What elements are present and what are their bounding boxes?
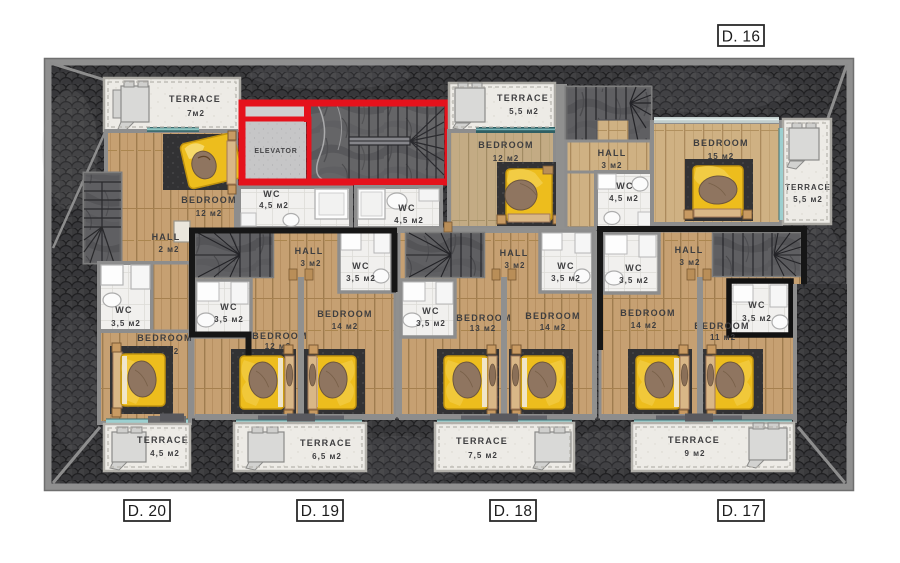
svg-text:13 м2: 13 м2 <box>470 324 497 333</box>
svg-text:4,5 м2: 4,5 м2 <box>394 216 424 225</box>
svg-text:7,5 м2: 7,5 м2 <box>468 451 498 460</box>
svg-text:WC: WC <box>352 261 369 271</box>
svg-text:5,5 м2: 5,5 м2 <box>793 195 823 204</box>
svg-text:WC: WC <box>220 302 237 312</box>
svg-text:4,5 м2: 4,5 м2 <box>150 449 180 458</box>
svg-text:WC: WC <box>616 181 633 191</box>
svg-text:3 м2: 3 м2 <box>601 161 622 170</box>
svg-text:ELEVATOR: ELEVATOR <box>254 148 297 155</box>
svg-text:3 м2: 3 м2 <box>679 258 700 267</box>
svg-text:4,5 м2: 4,5 м2 <box>259 201 289 210</box>
svg-text:3 м2: 3 м2 <box>300 259 321 268</box>
svg-text:BEDROOM: BEDROOM <box>317 309 372 319</box>
svg-text:TERRACE: TERRACE <box>668 435 720 445</box>
svg-text:HALL: HALL <box>295 246 324 256</box>
svg-text:3,5 м2: 3,5 м2 <box>111 319 141 328</box>
svg-text:HALL: HALL <box>500 248 529 258</box>
svg-text:TERRACE: TERRACE <box>169 94 221 104</box>
svg-text:3,5 м2: 3,5 м2 <box>346 274 376 283</box>
svg-text:3,5 м2: 3,5 м2 <box>551 274 581 283</box>
svg-text:HALL: HALL <box>152 232 181 242</box>
svg-text:D. 19: D. 19 <box>301 503 340 520</box>
svg-text:TERRACE: TERRACE <box>137 435 189 445</box>
svg-text:TERRACE: TERRACE <box>497 93 549 103</box>
svg-text:7м2: 7м2 <box>187 109 205 118</box>
svg-text:14 м2: 14 м2 <box>631 321 658 330</box>
svg-text:BEDROOM: BEDROOM <box>181 195 236 205</box>
svg-text:12 м2: 12 м2 <box>493 154 520 163</box>
svg-text:3,5 м2: 3,5 м2 <box>619 276 649 285</box>
svg-text:9 м2: 9 м2 <box>684 449 705 458</box>
svg-text:D. 17: D. 17 <box>722 503 761 520</box>
svg-text:D. 18: D. 18 <box>494 503 533 520</box>
svg-text:TERRACE: TERRACE <box>456 436 508 446</box>
svg-text:6,5 м2: 6,5 м2 <box>312 452 342 461</box>
svg-text:12 м2: 12 м2 <box>196 209 223 218</box>
svg-text:BEDROOM: BEDROOM <box>478 140 533 150</box>
svg-text:WC: WC <box>263 189 280 199</box>
svg-text:WC: WC <box>115 305 132 315</box>
svg-text:TERRACE: TERRACE <box>785 183 831 192</box>
svg-text:WC: WC <box>625 263 642 273</box>
svg-text:D. 20: D. 20 <box>128 503 167 520</box>
svg-text:2 м2: 2 м2 <box>158 245 179 254</box>
svg-text:WC: WC <box>398 203 415 213</box>
svg-text:3,5 м2: 3,5 м2 <box>214 315 244 324</box>
svg-text:TERRACE: TERRACE <box>300 438 352 448</box>
svg-text:HALL: HALL <box>675 245 704 255</box>
svg-text:14 м2: 14 м2 <box>332 322 359 331</box>
svg-text:4,5 м2: 4,5 м2 <box>609 194 639 203</box>
svg-text:BEDROOM: BEDROOM <box>137 333 192 343</box>
svg-text:WC: WC <box>422 306 439 316</box>
svg-text:BEDROOM: BEDROOM <box>620 308 675 318</box>
svg-text:3,5 м2: 3,5 м2 <box>416 319 446 328</box>
svg-text:D. 16: D. 16 <box>722 29 761 46</box>
svg-text:5,5 м2: 5,5 м2 <box>509 107 539 116</box>
svg-text:WC: WC <box>557 261 574 271</box>
svg-text:HALL: HALL <box>598 148 627 158</box>
svg-text:BEDROOM: BEDROOM <box>525 311 580 321</box>
svg-text:11 м2: 11 м2 <box>710 333 736 342</box>
svg-text:WC: WC <box>748 300 765 310</box>
svg-text:14 м2: 14 м2 <box>540 323 567 332</box>
svg-text:BEDROOM: BEDROOM <box>693 138 748 148</box>
